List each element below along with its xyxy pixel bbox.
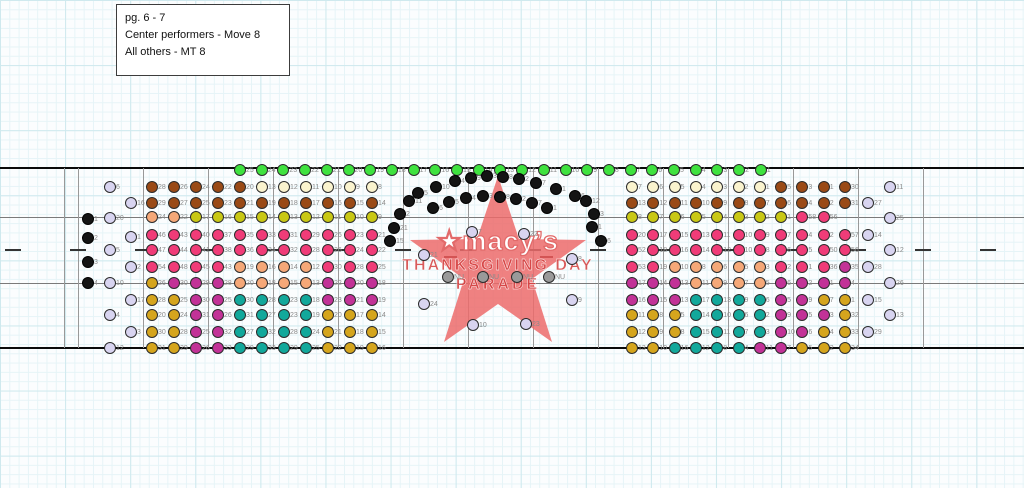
performer-dot-pk[interactable] [818,244,830,256]
performer-dot-og[interactable] [733,277,745,289]
performer-dot-pk[interactable] [775,229,787,241]
performer-dot-bn[interactable] [190,181,202,193]
performer-dot-bk[interactable] [82,256,94,268]
performer-dot-pk[interactable] [212,261,224,273]
performer-dot-tl[interactable] [733,342,745,354]
performer-dot-og[interactable] [669,261,681,273]
performer-dot-pk[interactable] [366,261,378,273]
performer-dot-bk[interactable] [388,222,400,234]
performer-dot-lv[interactable] [104,181,116,193]
performer-dot-cm[interactable] [300,181,312,193]
performer-dot-tl[interactable] [234,309,246,321]
performer-dot-tl[interactable] [256,309,268,321]
performer-dot-yg[interactable] [344,211,356,223]
performer-dot-bk[interactable] [443,196,455,208]
performer-dot-mg[interactable] [212,294,224,306]
performer-dot-lv[interactable] [884,181,896,193]
performer-dot-lv[interactable] [566,253,578,265]
performer-dot-mg[interactable] [212,277,224,289]
performer-dot-pk[interactable] [322,229,334,241]
performer-dot-mg[interactable] [775,277,787,289]
performer-dot-gd[interactable] [669,309,681,321]
performer-dot-og[interactable] [754,261,766,273]
performer-dot-mg[interactable] [322,294,334,306]
performer-dot-gy[interactable] [442,271,454,283]
performer-dot-gd[interactable] [839,342,851,354]
performer-dot-cm[interactable] [256,181,268,193]
performer-dot-tl[interactable] [733,326,745,338]
performer-dot-yg[interactable] [212,211,224,223]
performer-dot-pk[interactable] [626,244,638,256]
performer-dot-tl[interactable] [300,309,312,321]
performer-dot-bk[interactable] [427,202,439,214]
performer-dot-cm[interactable] [733,181,745,193]
performer-dot-pk[interactable] [754,244,766,256]
performer-dot-bn[interactable] [146,181,158,193]
performer-dot-gn[interactable] [733,164,745,176]
performer-dot-lv[interactable] [125,326,137,338]
performer-dot-cm[interactable] [690,181,702,193]
performer-dot-mg[interactable] [366,277,378,289]
performer-dot-og[interactable] [690,261,702,273]
note-line-others: All others - MT 8 [125,44,281,61]
performer-dot-gd[interactable] [669,326,681,338]
performer-dot-bn[interactable] [733,197,745,209]
performer-dot-gd[interactable] [322,309,334,321]
performer-dot-yg[interactable] [278,211,290,223]
performer-dot-lv[interactable] [125,231,137,243]
performer-dot-bk[interactable] [460,192,472,204]
performer-dot-gd[interactable] [818,342,830,354]
performer-dot-mg[interactable] [190,309,202,321]
performer-dot-lv[interactable] [104,212,116,224]
performer-dot-yg[interactable] [300,211,312,223]
performer-dot-mg[interactable] [168,277,180,289]
performer-dot-tl[interactable] [669,342,681,354]
performer-dot-bn[interactable] [818,181,830,193]
performer-dot-bk[interactable] [586,221,598,233]
performer-dot-lv[interactable] [884,212,896,224]
performer-dot-tl[interactable] [278,326,290,338]
performer-number-label: 12 [290,184,298,191]
performer-dot-tl[interactable] [300,342,312,354]
performer-dot-mg[interactable] [818,309,830,321]
performer-dot-mg[interactable] [212,326,224,338]
performer-dot-lv[interactable] [125,261,137,273]
performer-number-label: 28 [290,329,298,336]
performer-number-label: 16 [137,200,145,207]
performer-dot-bn[interactable] [322,197,334,209]
performer-dot-pk[interactable] [300,229,312,241]
performer-number-label: 8 [702,264,706,271]
performer-dot-bk[interactable] [595,235,607,247]
performer-dot-pk[interactable] [818,229,830,241]
performer-dot-cm[interactable] [278,181,290,193]
performer-dot-bk[interactable] [497,171,509,183]
performer-dot-lv[interactable] [418,249,430,261]
performer-dot-gd[interactable] [322,342,334,354]
performer-dot-og[interactable] [733,261,745,273]
performer-dot-gd[interactable] [344,326,356,338]
performer-dot-yg[interactable] [775,211,787,223]
performer-dot-bn[interactable] [168,197,180,209]
performer-number-label: 12 [896,247,904,254]
performer-dot-bn[interactable] [234,181,246,193]
performer-dot-gd[interactable] [839,294,851,306]
performer-dot-tl[interactable] [754,294,766,306]
performer-dot-mg[interactable] [190,342,202,354]
performer-dot-gd[interactable] [168,294,180,306]
performer-dot-gd[interactable] [168,309,180,321]
performer-dot-bn[interactable] [818,197,830,209]
performer-dot-mg[interactable] [775,294,787,306]
performer-dot-gd[interactable] [366,342,378,354]
performer-dot-tl[interactable] [278,309,290,321]
performer-dot-bk[interactable] [394,208,406,220]
performer-dot-lv[interactable] [104,277,116,289]
performer-dot-cm[interactable] [626,181,638,193]
performer-dot-lv[interactable] [518,228,530,240]
performer-dot-pk[interactable] [212,244,224,256]
performer-dot-bn[interactable] [775,181,787,193]
performer-dot-bn[interactable] [212,197,224,209]
performer-dot-lv[interactable] [862,294,874,306]
performer-dot-bk[interactable] [477,190,489,202]
performer-dot-tl[interactable] [754,309,766,321]
performer-dot-bn[interactable] [212,181,224,193]
performer-dot-og[interactable] [300,277,312,289]
performer-dot-gd[interactable] [818,326,830,338]
performer-dot-gd[interactable] [839,309,851,321]
performer-dot-tl[interactable] [234,326,246,338]
performer-dot-tl[interactable] [300,294,312,306]
performer-dot-bk[interactable] [465,172,477,184]
performer-dot-gn[interactable] [603,164,615,176]
performer-dot-bk[interactable] [481,170,493,182]
performer-dot-mg[interactable] [626,294,638,306]
performer-dot-lv[interactable] [104,244,116,256]
performer-dot-yg[interactable] [626,211,638,223]
performer-dot-mg[interactable] [839,277,851,289]
performer-number-label: 8 [659,312,663,319]
performer-dot-tl[interactable] [234,342,246,354]
performer-dot-bk[interactable] [449,175,461,187]
performer-dot-og[interactable] [278,277,290,289]
performer-dot-gd[interactable] [344,342,356,354]
performer-dot-pk[interactable] [818,261,830,273]
performer-dot-pk[interactable] [733,229,745,241]
performer-dot-lv[interactable] [862,229,874,241]
performer-dot-gn[interactable] [755,164,767,176]
performer-dot-pk[interactable] [278,244,290,256]
performer-dot-tl[interactable] [256,294,268,306]
performer-dot-gd[interactable] [344,309,356,321]
performer-dot-bk[interactable] [430,181,442,193]
performer-dot-og[interactable] [168,211,180,223]
performer-dot-pk[interactable] [775,261,787,273]
performer-dot-pk[interactable] [190,229,202,241]
performer-dot-yg[interactable] [190,211,202,223]
performer-dot-mg[interactable] [212,342,224,354]
performer-dot-lv[interactable] [104,309,116,321]
performer-dot-mg[interactable] [754,342,766,354]
performer-dot-bk[interactable] [82,232,94,244]
performer-dot-yg[interactable] [366,211,378,223]
performer-dot-gd[interactable] [168,326,180,338]
performer-dot-cm[interactable] [366,181,378,193]
performer-dot-og[interactable] [754,277,766,289]
performer-dot-pk[interactable] [366,229,378,241]
performer-dot-gd[interactable] [818,294,830,306]
performer-dot-cm[interactable] [754,181,766,193]
performer-dot-bn[interactable] [669,197,681,209]
performer-dot-lv[interactable] [862,197,874,209]
performer-dot-gy[interactable] [477,271,489,283]
performer-dot-pk[interactable] [234,244,246,256]
performer-number-label: 25 [378,264,386,271]
performer-dot-pk[interactable] [626,229,638,241]
performer-dot-lv[interactable] [520,318,532,330]
performer-dot-tl[interactable] [690,342,702,354]
performer-dot-gd[interactable] [626,342,638,354]
performer-dot-og[interactable] [256,277,268,289]
performer-dot-tl[interactable] [256,326,268,338]
performer-number-label: 16 [378,345,386,352]
performer-dot-mg[interactable] [775,309,787,321]
performer-dot-pk[interactable] [168,261,180,273]
performer-dot-pk[interactable] [733,244,745,256]
performer-dot-bn[interactable] [300,197,312,209]
performer-dot-bn[interactable] [146,197,158,209]
performer-dot-mg[interactable] [775,326,787,338]
performer-dot-gn[interactable] [234,164,246,176]
performer-dot-mg[interactable] [212,309,224,321]
performer-dot-mg[interactable] [839,261,851,273]
performer-dot-lv[interactable] [418,298,430,310]
performer-dot-mg[interactable] [818,277,830,289]
performer-dot-tl[interactable] [278,342,290,354]
performer-dot-og[interactable] [278,261,290,273]
performer-dot-lv[interactable] [884,244,896,256]
performer-dot-pk[interactable] [839,229,851,241]
performer-dot-yg[interactable] [690,211,702,223]
performer-dot-og[interactable] [146,211,158,223]
performer-number-label: 32 [851,312,859,319]
performer-dot-bk[interactable] [384,235,396,247]
performer-dot-pk[interactable] [256,229,268,241]
performer-dot-tl[interactable] [733,294,745,306]
performer-dot-bn[interactable] [168,181,180,193]
performer-dot-lv[interactable] [125,197,137,209]
performer-dot-pk[interactable] [669,244,681,256]
performer-dot-pk[interactable] [190,261,202,273]
performer-dot-cm[interactable] [322,181,334,193]
performer-number-label: 8 [766,247,770,254]
performer-dot-bn[interactable] [190,197,202,209]
performer-dot-pk[interactable] [344,244,356,256]
performer-dot-mg[interactable] [366,294,378,306]
performer-dot-bk[interactable] [530,177,542,189]
performer-dot-lv[interactable] [862,326,874,338]
performer-dot-yg[interactable] [733,211,745,223]
performer-dot-gd[interactable] [146,294,158,306]
performer-dot-pk[interactable] [278,229,290,241]
performer-dot-pk[interactable] [168,229,180,241]
performer-dot-og[interactable] [690,277,702,289]
performer-dot-pk[interactable] [690,244,702,256]
performer-dot-og[interactable] [234,277,246,289]
performer-dot-bn[interactable] [775,197,787,209]
performer-dot-gn[interactable] [668,164,680,176]
performer-number-label: 29 [874,329,882,336]
performer-dot-gd[interactable] [839,326,851,338]
performer-dot-tl[interactable] [690,309,702,321]
performer-dot-pk[interactable] [366,244,378,256]
performer-dot-gn[interactable] [299,164,311,176]
performer-dot-bn[interactable] [690,197,702,209]
performer-dot-yg[interactable] [322,211,334,223]
performer-dot-gn[interactable] [256,164,268,176]
performer-dot-pk[interactable] [322,261,334,273]
performer-dot-bk[interactable] [550,183,562,195]
performer-dot-gn[interactable] [343,164,355,176]
performer-dot-yg[interactable] [669,211,681,223]
performer-dot-lv[interactable] [884,277,896,289]
performer-dot-tl[interactable] [278,294,290,306]
performer-dot-tl[interactable] [300,326,312,338]
performer-dot-gn[interactable] [690,164,702,176]
performer-dot-gd[interactable] [146,326,158,338]
performer-dot-pk[interactable] [256,244,268,256]
performer-dot-pk[interactable] [818,211,830,223]
performer-dot-tl[interactable] [690,294,702,306]
performer-dot-lv[interactable] [466,226,478,238]
performer-dot-gy[interactable] [543,271,555,283]
performer-dot-pk[interactable] [775,244,787,256]
performer-dot-bn[interactable] [839,197,851,209]
performer-dot-gd[interactable] [168,342,180,354]
performer-dot-bk[interactable] [580,195,592,207]
performer-dot-bk[interactable] [588,208,600,220]
performer-dot-bn[interactable] [626,197,638,209]
performer-dot-mg[interactable] [344,277,356,289]
performer-dot-gd[interactable] [146,277,158,289]
performer-dot-og[interactable] [234,261,246,273]
performer-dot-pk[interactable] [190,244,202,256]
instruction-note-box[interactable]: pg. 6 - 7 Center performers - Move 8 All… [116,4,290,76]
performer-dot-gn[interactable] [321,164,333,176]
performer-dot-tl[interactable] [256,342,268,354]
performer-dot-yg[interactable] [256,211,268,223]
performer-dot-bn[interactable] [839,181,851,193]
performer-dot-pk[interactable] [690,229,702,241]
performer-dot-mg[interactable] [626,277,638,289]
performer-dot-bk[interactable] [403,195,415,207]
performer-dot-mg[interactable] [344,294,356,306]
performer-dot-bk[interactable] [82,277,94,289]
performer-dot-pk[interactable] [344,261,356,273]
performer-dot-yg[interactable] [234,211,246,223]
performer-dot-pk[interactable] [669,229,681,241]
performer-dot-gd[interactable] [322,326,334,338]
performer-dot-gn[interactable] [386,164,398,176]
performer-number-label: 11 [334,214,341,221]
performer-dot-lv[interactable] [884,309,896,321]
performer-dot-cm[interactable] [669,181,681,193]
performer-dot-gd[interactable] [626,326,638,338]
performer-dot-tl[interactable] [690,326,702,338]
performer-dot-gn[interactable] [408,164,420,176]
performer-number-label: 26 [158,280,166,287]
performer-dot-pk[interactable] [234,229,246,241]
performer-dot-mg[interactable] [190,294,202,306]
performer-dot-pk[interactable] [322,244,334,256]
performer-dot-gn[interactable] [538,164,550,176]
performer-dot-mg[interactable] [322,277,334,289]
performer-dot-bk[interactable] [513,173,525,185]
performer-dot-bn[interactable] [344,197,356,209]
performer-number-label: 23 [290,297,298,304]
performer-dot-lv[interactable] [862,261,874,273]
performer-dot-bk[interactable] [541,202,553,214]
performer-dot-tl[interactable] [733,309,745,321]
performer-dot-bk[interactable] [494,191,506,203]
performer-dot-pk[interactable] [344,229,356,241]
performer-dot-mg[interactable] [190,277,202,289]
performer-dot-bn[interactable] [278,197,290,209]
performer-dot-gd[interactable] [146,342,158,354]
performer-dot-yg[interactable] [754,211,766,223]
performer-dot-pk[interactable] [146,244,158,256]
performer-dot-bk[interactable] [510,193,522,205]
performer-dot-pk[interactable] [754,229,766,241]
performer-dot-pk[interactable] [146,261,158,273]
performer-dot-mg[interactable] [775,342,787,354]
performer-dot-mg[interactable] [190,326,202,338]
performer-dot-gd[interactable] [146,309,158,321]
performer-dot-lv[interactable] [125,294,137,306]
performer-dot-lv[interactable] [566,294,578,306]
performer-dot-tl[interactable] [234,294,246,306]
performer-dot-lv[interactable] [467,319,479,331]
performer-dot-mg[interactable] [669,294,681,306]
performer-dot-gy[interactable] [511,271,523,283]
performer-dot-pk[interactable] [626,261,638,273]
performer-dot-gd[interactable] [626,309,638,321]
performer-dot-bk[interactable] [526,197,538,209]
performer-dot-pk[interactable] [168,244,180,256]
performer-dot-tl[interactable] [754,326,766,338]
performer-dot-pk[interactable] [300,244,312,256]
performer-dot-lv[interactable] [104,342,116,354]
performer-dot-gd[interactable] [366,326,378,338]
performer-dot-gn[interactable] [560,164,572,176]
performer-dot-pk[interactable] [212,229,224,241]
performer-dot-bn[interactable] [366,197,378,209]
performer-dot-og[interactable] [256,261,268,273]
performer-dot-bn[interactable] [754,197,766,209]
performer-dot-gd[interactable] [366,309,378,321]
performer-dot-cm[interactable] [344,181,356,193]
performer-dot-mg[interactable] [669,277,681,289]
performer-dot-og[interactable] [300,261,312,273]
performer-dot-bn[interactable] [234,197,246,209]
performer-dot-gn[interactable] [625,164,637,176]
performer-dot-pk[interactable] [839,244,851,256]
performer-dot-bk[interactable] [82,213,94,225]
performer-dot-bn[interactable] [256,197,268,209]
performer-dot-pk[interactable] [146,229,158,241]
